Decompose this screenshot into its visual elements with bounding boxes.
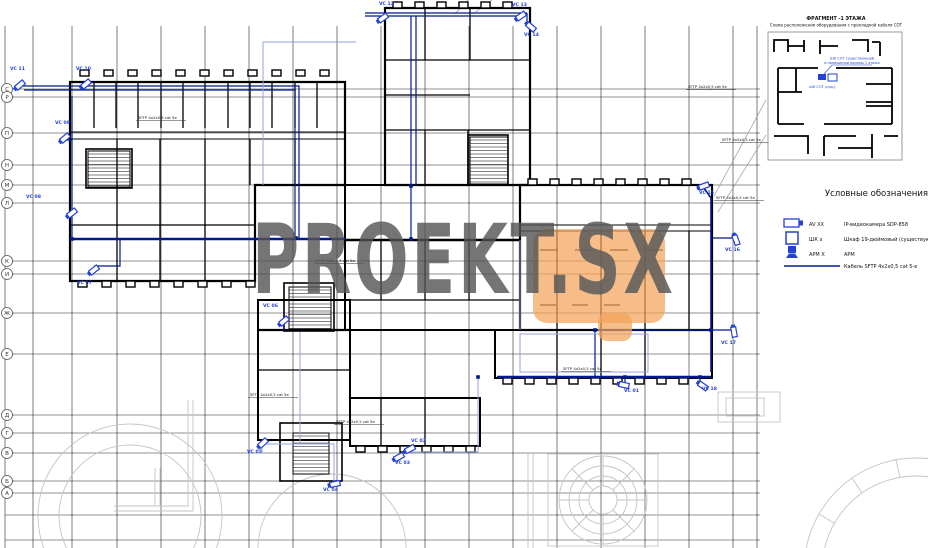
cable-spec-label: SFTP 4x2x0,5 cat 5e: [316, 258, 355, 263]
cable-spec-label: SFTP 4x2x0,5 cat 5e: [138, 115, 177, 120]
cctv-floor-plan-drawing: SFTP 4x2x0,5 cat 5eSFTP 4x2x0,5 cat 5eSF…: [0, 0, 928, 548]
camera-symbol-icon: [784, 219, 799, 227]
camera-label: VC 09: [55, 120, 70, 126]
pilaster-tooth: [422, 446, 431, 452]
camera-symbol-tag-icon: [799, 221, 803, 226]
pilaster-tooth: [550, 179, 559, 185]
pilaster-tooth: [104, 70, 113, 76]
pilaster-tooth: [459, 2, 468, 8]
pilaster-tooth: [415, 2, 424, 8]
pilaster-tooth: [547, 378, 556, 384]
cable-spec-label: SFTP 4x2x0,5 cat 5e: [336, 419, 375, 424]
pilaster-tooth: [638, 179, 647, 185]
pilaster-tooth: [356, 446, 365, 452]
pilaster-tooth: [635, 378, 644, 384]
pilaster-tooth: [481, 2, 490, 8]
pilaster-tooth: [466, 446, 475, 452]
pilaster-tooth: [126, 281, 135, 287]
axis-letter: Б: [5, 479, 9, 485]
legend-item-cabinet: ШК х Шкаф 19-дюймовый (существующий): [786, 232, 928, 244]
axis-letter: Е: [5, 352, 9, 358]
legend-desc: Кабель SFTP 4x2x0,5 cat 5-е: [844, 264, 917, 270]
pilaster-tooth: [128, 70, 137, 76]
pilaster-tooth: [393, 2, 402, 8]
legend-code: ШК х: [809, 237, 822, 243]
pilaster-tooth: [176, 70, 185, 76]
fragment-annotation: в помещении охраны 1 этажа: [824, 61, 879, 65]
camera-icon: [87, 265, 100, 277]
camera-icon: [277, 316, 290, 328]
camera-label: VC 14: [524, 32, 539, 38]
junction-dot: [623, 375, 627, 379]
legend-item-workstation: АРМ Х АРМ: [786, 246, 855, 258]
camera-icon: [616, 381, 629, 388]
pilaster-tooth: [503, 378, 512, 384]
legend-desc: АРМ: [844, 252, 855, 258]
legend-desc: Шкаф 19-дюймовый (существующий): [844, 236, 928, 243]
pilaster-tooth: [594, 179, 603, 185]
junction-dot: [409, 184, 413, 188]
pilaster-tooth: [591, 378, 600, 384]
junction-dot: [70, 237, 74, 241]
pilaster-tooth: [102, 281, 111, 287]
camera-label: VC 15: [699, 190, 714, 196]
axis-letter: Д: [5, 413, 10, 419]
pilaster-tooth: [272, 70, 281, 76]
legend-code: AV XX: [809, 222, 825, 228]
fragment-inset: ФРАГМЕНТ -1 ЭТАЖА Схема расположения обо…: [768, 16, 903, 160]
camera-label: VC 12: [379, 1, 394, 7]
camera-label: VC 06: [263, 303, 278, 309]
camera-label: VC 03: [395, 460, 410, 466]
cable-spec-label: SFTP 4x2x0,5 cat 5e: [250, 392, 289, 397]
cable-spec-labels: SFTP 4x2x0,5 cat 5eSFTP 4x2x0,5 cat 5eSF…: [136, 84, 770, 425]
junction-dot: [593, 328, 597, 332]
camera-label: VC 17: [721, 340, 736, 346]
junction-dot: [476, 375, 480, 379]
camera-icon: [696, 182, 709, 191]
fragment-subtitle: Схема расположения оборудования с прокла…: [770, 23, 903, 28]
pilaster-tooth: [152, 70, 161, 76]
pilaster-tooth: [248, 70, 257, 76]
camera-label: VC 10: [76, 66, 91, 72]
pilaster-tooth: [525, 378, 534, 384]
pilaster-tooth: [682, 179, 691, 185]
fragment-cabinet-label: ШК СОТ (сущ): [809, 85, 835, 89]
axis-letter: А: [5, 491, 9, 497]
pilaster-tooth: [572, 179, 581, 185]
pilaster-tooth: [246, 281, 255, 287]
pilaster-tooth: [503, 2, 512, 8]
pilaster-tooth: [200, 70, 209, 76]
pilaster-tooth: [528, 179, 537, 185]
pilaster-tooth: [437, 2, 446, 8]
junction-dot: [698, 375, 702, 379]
pilaster-tooth: [660, 179, 669, 185]
fragment-cabinet-icon: [818, 74, 826, 80]
camera-icon: [375, 13, 388, 24]
pilaster-tooth: [296, 70, 305, 76]
axis-letter: Н: [5, 163, 9, 169]
axis-letter: И: [5, 272, 9, 278]
camera-label: VC 01: [624, 388, 639, 394]
camera-label: VC 16: [725, 247, 740, 253]
legend-title: Условные обозначения: [825, 189, 928, 199]
axis-letter: К: [5, 259, 9, 265]
workstation-base-icon: [786, 254, 798, 259]
cabinet-symbol-icon: [786, 232, 798, 244]
pilaster-tooth: [150, 281, 159, 287]
floor-plan-canvas: SFTP 4x2x0,5 cat 5eSFTP 4x2x0,5 cat 5eSF…: [0, 0, 928, 548]
axis-letter: М: [5, 183, 10, 189]
junction-dot: [709, 328, 713, 332]
camera-icon: [730, 324, 737, 337]
legend-item-camera: AV XX IP-видеокамера SDP-858: [784, 219, 908, 228]
axis-letter: В: [5, 451, 9, 457]
pilaster-tooth: [224, 70, 233, 76]
underlay-contours: [38, 392, 928, 548]
workstation-symbol-icon: [788, 246, 796, 253]
camera-icon: [13, 80, 26, 92]
cable-spec-label: SFTP 4x2x0,5 cat 5e: [722, 137, 761, 142]
pilaster-tooth: [679, 378, 688, 384]
axis-letter: Ж: [4, 311, 10, 317]
camera-label: VC 18: [702, 386, 717, 392]
cable-spec-label: SFTP 4x2x0,5 cat 5e: [688, 84, 727, 89]
junction-dot: [409, 237, 413, 241]
fragment-title: ФРАГМЕНТ -1 ЭТАЖА: [806, 16, 865, 22]
camera-label: VC 13: [512, 2, 527, 8]
camera-label: VC 02: [411, 438, 426, 444]
pilaster-tooth: [320, 70, 329, 76]
axis-letter: Л: [5, 201, 9, 207]
camera-icon: [58, 133, 71, 145]
legend-item-cable: Кабель SFTP 4x2x0,5 cat 5-е: [784, 264, 917, 270]
axis-letter: П: [5, 131, 9, 137]
cable-spec-label: SFTP 4x2x0,5 cat 5e: [563, 366, 602, 371]
legend: Условные обозначения AV XX IP-видеокамер…: [784, 189, 928, 270]
camera-label: VC 11: [10, 66, 25, 72]
junction-dot: [294, 236, 298, 240]
pilaster-tooth: [174, 281, 183, 287]
pilaster-tooth: [378, 446, 387, 452]
fragment-leader-lines: [455, 0, 766, 212]
pilaster-tooth: [198, 281, 207, 287]
camera-label: VC 04: [323, 487, 338, 493]
pilaster-tooth: [444, 446, 453, 452]
legend-desc: IP-видеокамера SDP-858: [844, 222, 908, 228]
camera-label: VC 05: [247, 449, 262, 455]
pilaster-tooth: [616, 179, 625, 185]
stair-outline: [88, 151, 130, 187]
legend-code: АРМ Х: [809, 252, 825, 258]
pilaster-tooth: [657, 378, 666, 384]
camera-label: VC 08: [26, 194, 41, 200]
camera-icon: [731, 232, 740, 245]
camera-label: VC 07: [77, 280, 92, 286]
pilaster-tooth: [569, 378, 578, 384]
grid-axis-bubbles: СРПНМЛКИЖЕДГВБА: [2, 84, 15, 499]
pilaster-tooth: [222, 281, 231, 287]
stair-outline: [470, 137, 508, 184]
cable-spec-label: SFTP 4x2x0,5 cat 5e: [716, 195, 755, 200]
